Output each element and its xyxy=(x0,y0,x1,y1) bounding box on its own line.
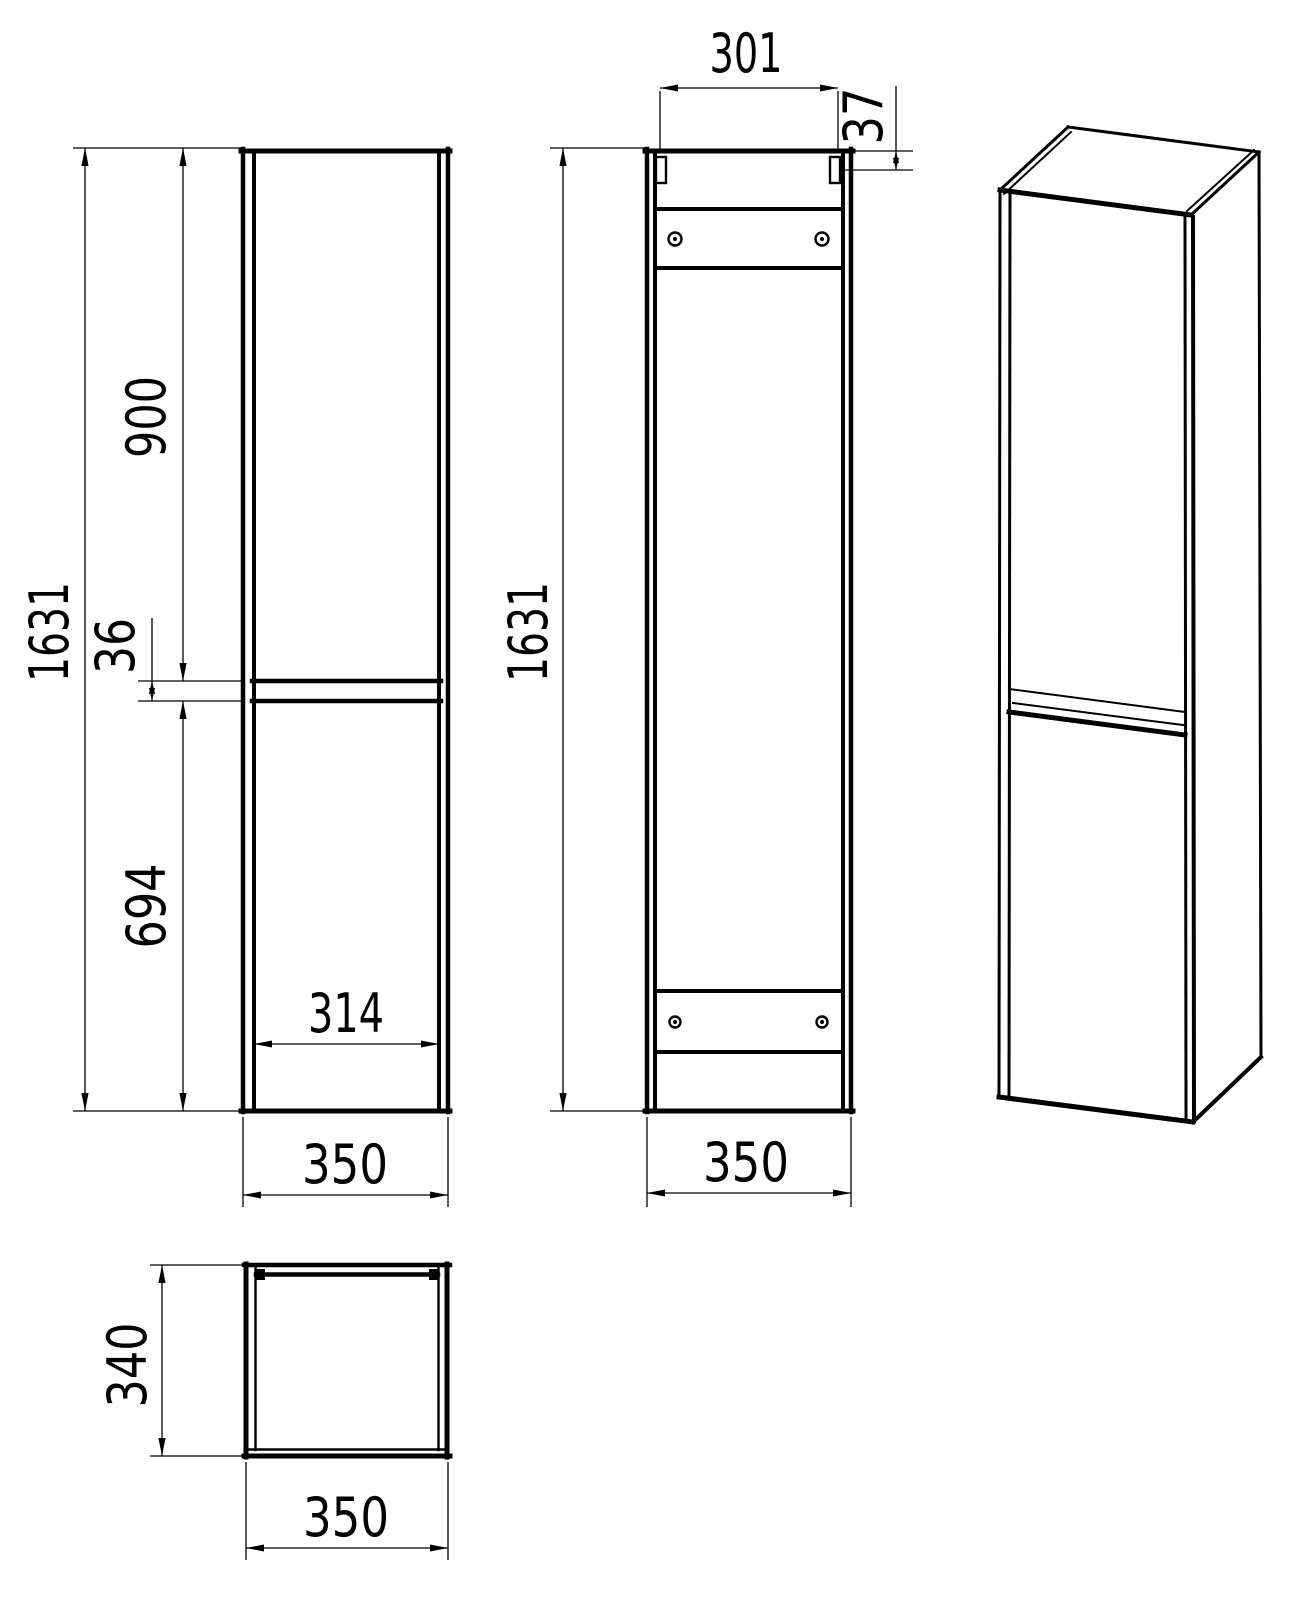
iso-bottom-front-edge xyxy=(999,1097,1193,1122)
front-total-height-label: 1631 xyxy=(18,582,81,682)
front-dimensions: 1631 900 36 694 314 350 xyxy=(18,148,448,1207)
iso-top-right-rim xyxy=(1187,150,1254,211)
iso-back-right-corner xyxy=(1259,152,1261,1057)
iso-top-right-edge xyxy=(1191,152,1259,215)
topview-width-label: 350 xyxy=(303,1486,389,1549)
back-total-height-label: 1631 xyxy=(497,582,560,682)
iso-gap-top-line xyxy=(1009,689,1185,712)
topview-depth-label: 340 xyxy=(96,1323,159,1408)
iso-top-left-rim xyxy=(1004,132,1071,194)
back-bracket-offset-label: 37 xyxy=(832,88,895,145)
left-hanging-bracket xyxy=(656,157,666,183)
front-top-door-height-label: 900 xyxy=(115,376,178,458)
right-hanging-bracket xyxy=(830,157,840,183)
back-width-label: 350 xyxy=(703,1131,789,1194)
cabinet-drawing: 1631 900 36 694 314 350 xyxy=(0,0,1301,1600)
top-view-dimensions: 340 350 xyxy=(96,1265,448,1560)
technical-drawing-page: 1631 900 36 694 314 350 xyxy=(0,0,1301,1600)
iso-front-left-corner xyxy=(999,190,1000,1097)
back-view: 301 37 1631 350 xyxy=(497,22,913,1207)
topview-door-left-cap xyxy=(256,1269,265,1280)
isometric-view xyxy=(999,127,1261,1122)
front-bottom-door-height-label: 694 xyxy=(115,864,178,949)
iso-front-right-corner xyxy=(1193,217,1194,1121)
back-bracket-span-label: 301 xyxy=(710,22,783,85)
front-width-label: 350 xyxy=(302,1133,388,1196)
top-view: 340 350 xyxy=(96,1264,450,1560)
iso-top-back-edge xyxy=(1068,127,1259,152)
iso-bottom-right-edge xyxy=(1193,1057,1261,1122)
iso-top-left-edge xyxy=(1000,127,1068,190)
topview-door-right-cap xyxy=(429,1269,438,1280)
iso-top-front-edge xyxy=(1000,190,1191,215)
front-door-gap-label: 36 xyxy=(84,618,147,674)
iso-door-left-edge xyxy=(1009,193,1010,1097)
iso-door-right-edge xyxy=(1185,216,1186,1121)
front-door-width-label: 314 xyxy=(308,982,384,1045)
front-view: 1631 900 36 694 314 350 xyxy=(18,148,450,1207)
iso-bottom-door-top-edge xyxy=(1009,712,1185,735)
